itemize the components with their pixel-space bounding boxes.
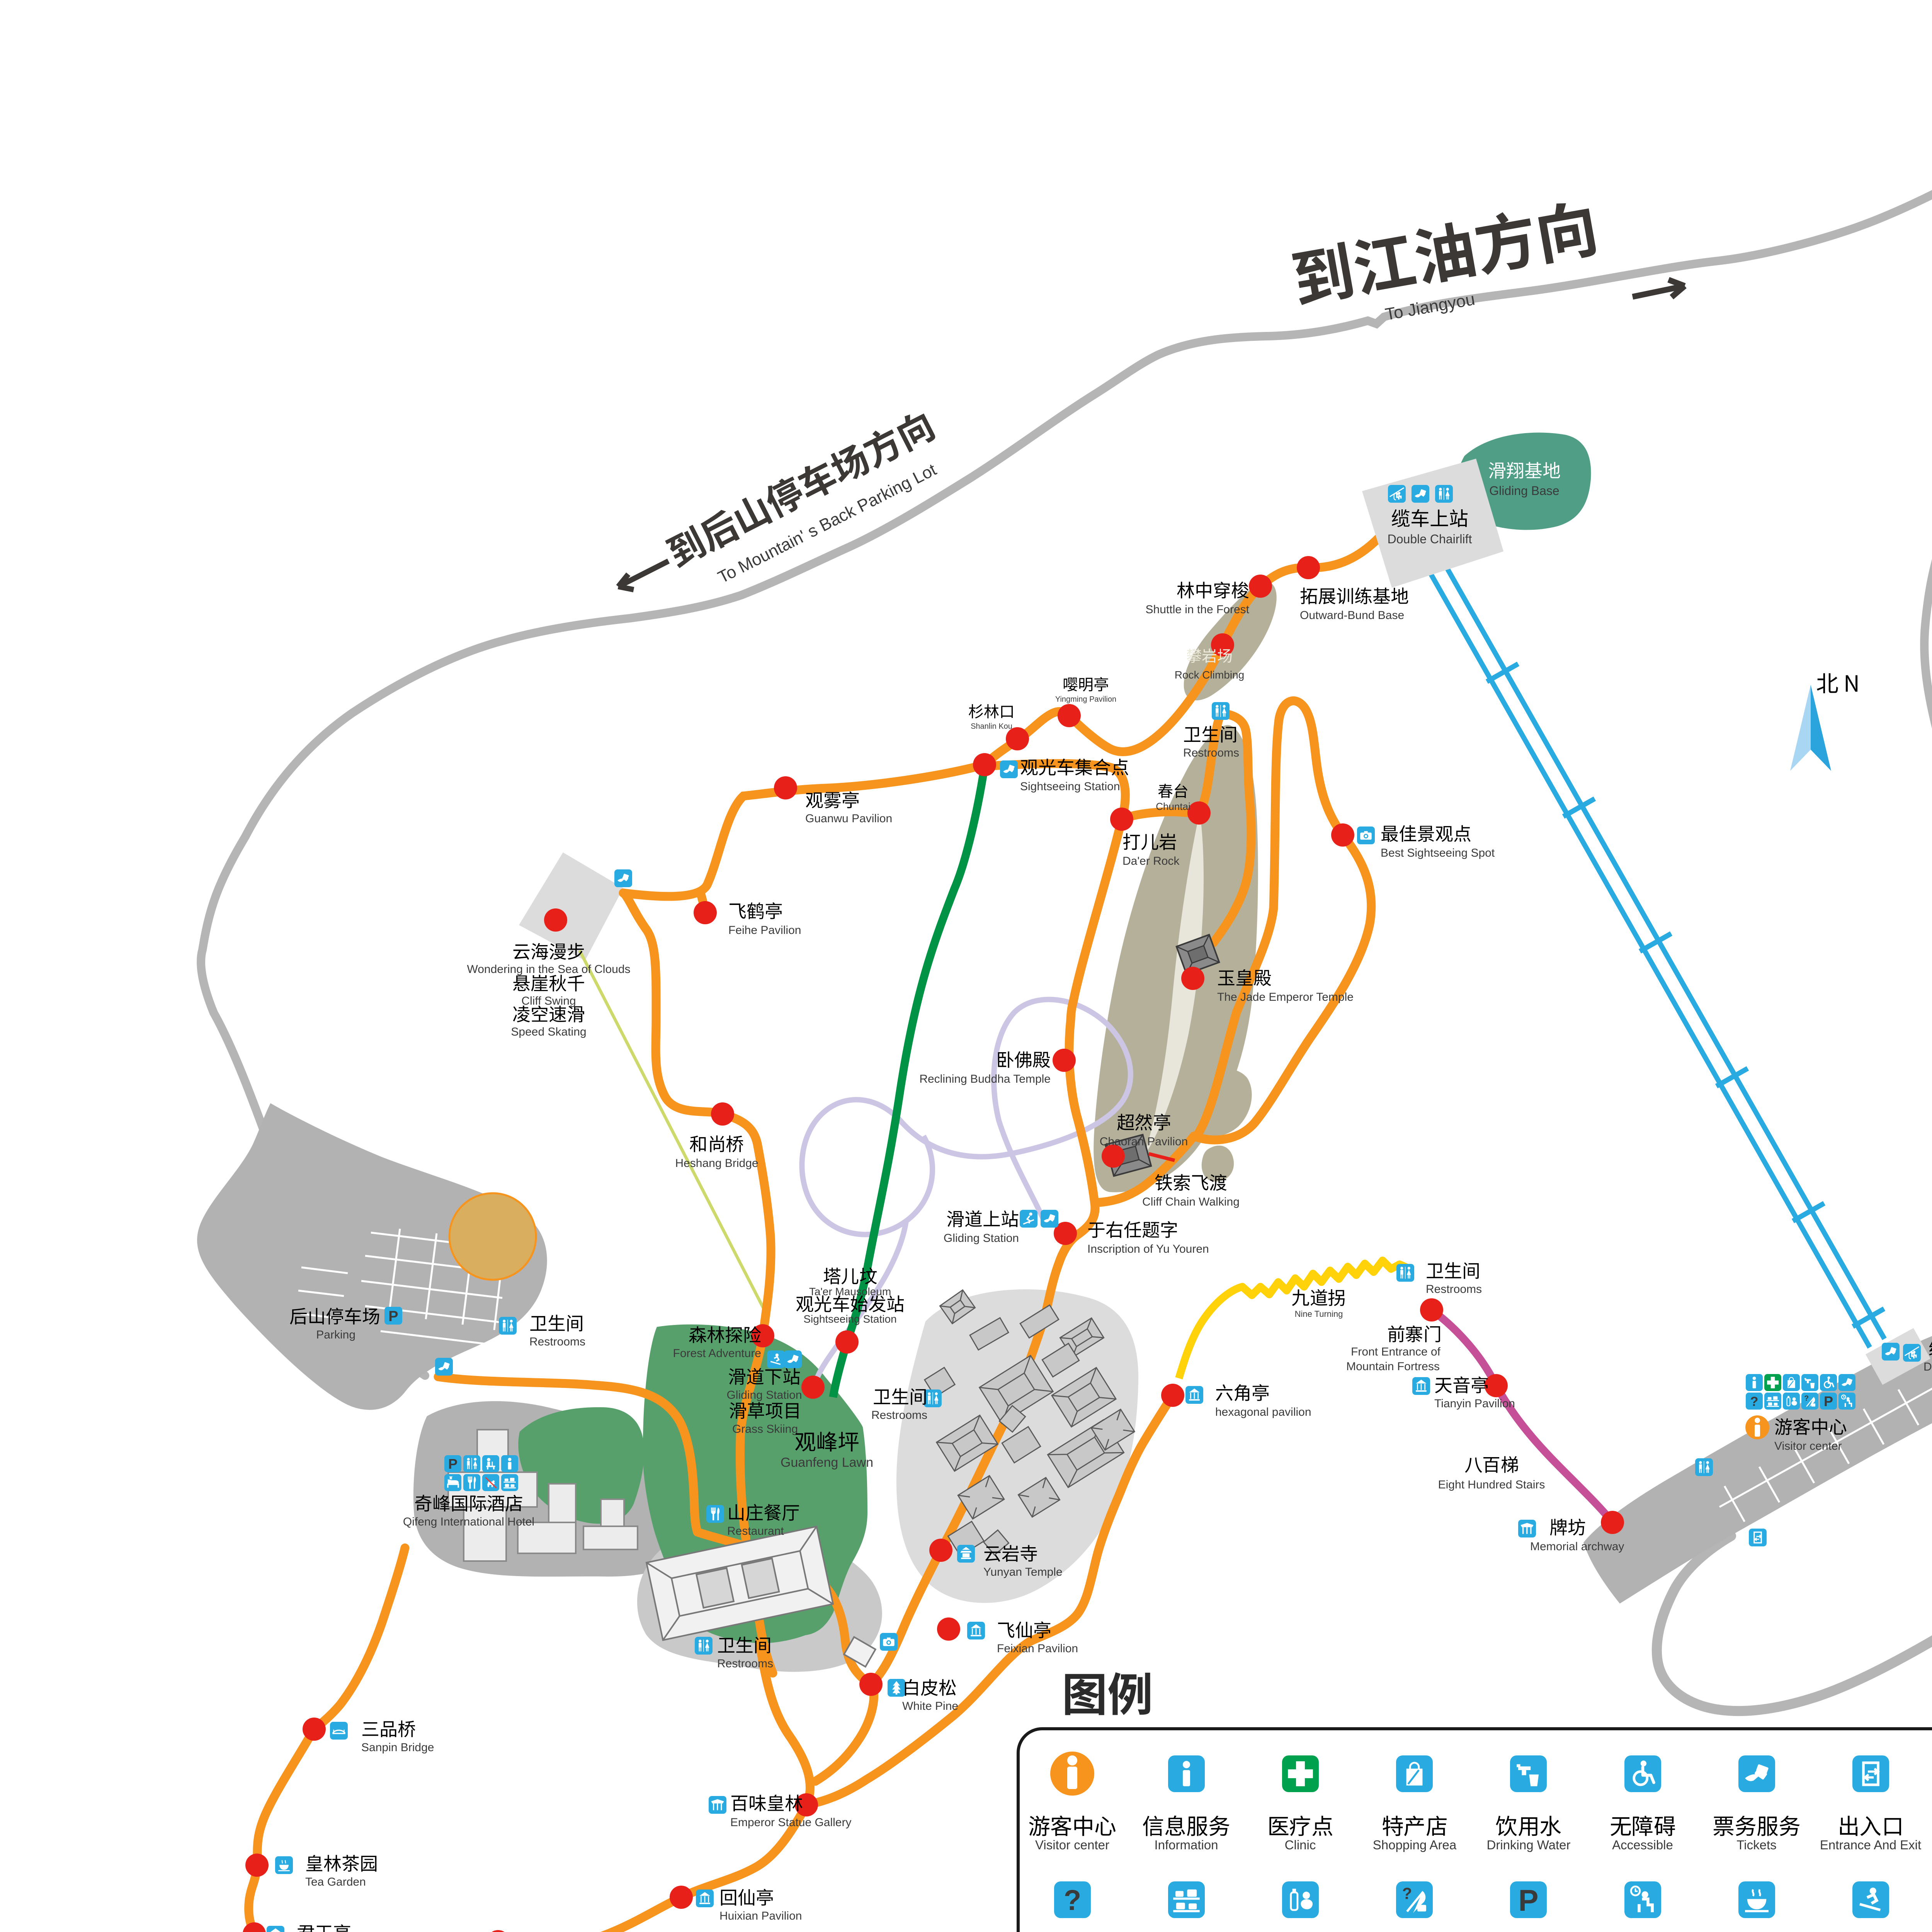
svg-text:Guanwu Pavilion: Guanwu Pavilion xyxy=(805,812,892,825)
svg-text:The Jade Emperor Temple: The Jade Emperor Temple xyxy=(1217,991,1354,1003)
svg-text:Gliding Base: Gliding Base xyxy=(1489,484,1559,498)
svg-text:Shopping Area: Shopping Area xyxy=(1373,1838,1457,1852)
svg-text:Drinking Water: Drinking Water xyxy=(1487,1838,1571,1852)
svg-text:Speed Skating: Speed Skating xyxy=(511,1026,586,1038)
svg-text:Qifeng International Hotel: Qifeng International Hotel xyxy=(403,1515,534,1528)
svg-text:Chaoran Pavilion: Chaoran Pavilion xyxy=(1100,1135,1188,1148)
svg-text:Emperor Statue Gallery: Emperor Statue Gallery xyxy=(730,1816,851,1829)
svg-text:Da'er Rock: Da'er Rock xyxy=(1122,855,1180,867)
svg-text:Rock Climbing: Rock Climbing xyxy=(1175,669,1245,681)
svg-text:Cliff Swing: Cliff Swing xyxy=(521,995,576,1007)
svg-text:Memorial archway: Memorial archway xyxy=(1530,1540,1624,1553)
svg-text:Restrooms: Restrooms xyxy=(871,1409,927,1422)
svg-text:Double Chairlift: Double Chairlift xyxy=(1923,1361,1932,1373)
svg-text:Double Chairlift: Double Chairlift xyxy=(1388,532,1472,546)
svg-text:Forest Adventure: Forest Adventure xyxy=(673,1347,761,1360)
svg-text:Sightseeing Station: Sightseeing Station xyxy=(803,1313,896,1325)
svg-text:Clinic: Clinic xyxy=(1285,1838,1316,1852)
svg-text:Best Sightseeing Spot: Best Sightseeing Spot xyxy=(1381,847,1495,859)
svg-text:Grass Skiing: Grass Skiing xyxy=(732,1423,798,1435)
svg-text:Visitor center: Visitor center xyxy=(1035,1838,1109,1852)
svg-text:Inscription of Yu Youren: Inscription of Yu Youren xyxy=(1087,1243,1209,1255)
svg-text:Information: Information xyxy=(1154,1838,1218,1852)
svg-text:Guanfeng Lawn: Guanfeng Lawn xyxy=(781,1455,873,1470)
svg-text:Gliding Station: Gliding Station xyxy=(944,1232,1019,1245)
svg-text:Mountain Fortress: Mountain Fortress xyxy=(1346,1360,1440,1373)
svg-text:Feixian Pavilion: Feixian Pavilion xyxy=(997,1642,1078,1655)
svg-text:Heshang Bridge: Heshang Bridge xyxy=(675,1157,758,1170)
svg-text:Parking: Parking xyxy=(316,1328,355,1341)
svg-text:White Pine: White Pine xyxy=(902,1700,958,1713)
svg-text:Chuntai: Chuntai xyxy=(1156,801,1190,812)
svg-text:Tianyin Pavilion: Tianyin Pavilion xyxy=(1434,1397,1515,1410)
svg-text:Feihe Pavilion: Feihe Pavilion xyxy=(728,924,801,937)
svg-text:Accessible: Accessible xyxy=(1612,1838,1673,1852)
svg-text:Shuttle in the Forest: Shuttle in the Forest xyxy=(1146,603,1250,616)
svg-text:Front Entrance of: Front Entrance of xyxy=(1351,1345,1440,1358)
svg-text:Ta'er Mausoleum: Ta'er Mausoleum xyxy=(809,1286,891,1298)
svg-text:Outward-Bund Base: Outward-Bund Base xyxy=(1300,609,1404,622)
svg-text:Cliff Chain Walking: Cliff Chain Walking xyxy=(1142,1196,1240,1208)
svg-text:Shanlin Kou: Shanlin Kou xyxy=(971,722,1012,731)
svg-text:Visitor center: Visitor center xyxy=(1774,1440,1842,1452)
svg-text:Tea Garden: Tea Garden xyxy=(305,1876,366,1888)
svg-text:Restrooms: Restrooms xyxy=(1183,747,1239,759)
svg-text:Reclining Buddha Temple: Reclining Buddha Temple xyxy=(919,1073,1051,1085)
svg-text:Restaurant: Restaurant xyxy=(727,1525,784,1537)
svg-text:Nine Turning: Nine Turning xyxy=(1295,1309,1343,1319)
svg-text:Entrance And Exit: Entrance And Exit xyxy=(1820,1838,1921,1852)
svg-text:Restrooms: Restrooms xyxy=(717,1657,773,1670)
svg-text:Yunyan Temple: Yunyan Temple xyxy=(983,1566,1063,1578)
svg-text:Restrooms: Restrooms xyxy=(1426,1283,1482,1296)
svg-text:Sightseeing Station: Sightseeing Station xyxy=(1020,780,1120,793)
svg-text:Wondering in the Sea of Clouds: Wondering in the Sea of Clouds xyxy=(467,963,630,976)
svg-text:Gliding Station: Gliding Station xyxy=(726,1389,802,1401)
svg-text:hexagonal pavilion: hexagonal pavilion xyxy=(1215,1406,1311,1418)
svg-text:Tickets: Tickets xyxy=(1736,1838,1776,1852)
svg-text:Eight Hundred Stairs: Eight Hundred Stairs xyxy=(1438,1478,1545,1491)
svg-text:Huixian Pavilion: Huixian Pavilion xyxy=(719,1910,802,1922)
svg-text:Restrooms: Restrooms xyxy=(529,1335,585,1348)
svg-text:Yingming Pavilion: Yingming Pavilion xyxy=(1055,695,1116,704)
svg-text:Sanpin Bridge: Sanpin Bridge xyxy=(361,1741,434,1754)
